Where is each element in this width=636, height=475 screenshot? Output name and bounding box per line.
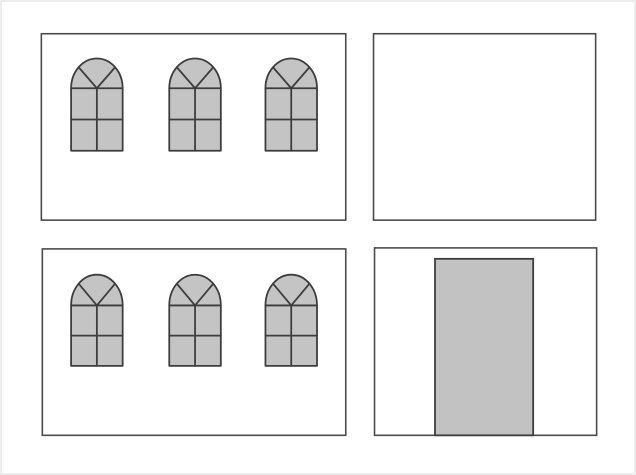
facade-diagram-canvas [0, 0, 636, 475]
arched-window [71, 275, 123, 366]
door [435, 259, 533, 436]
wall-panel-top-left [41, 34, 345, 220]
wall-panel-bottom-left [42, 249, 345, 435]
wall-outline-top-right [374, 34, 596, 220]
wall-panel-top-right [374, 34, 596, 220]
arched-window [265, 275, 317, 366]
arched-window [71, 59, 123, 151]
wall-panel-bottom-right [375, 248, 597, 435]
arched-window [169, 59, 221, 151]
arched-window [265, 59, 317, 151]
arched-window [169, 275, 221, 366]
facade-diagram [2, 2, 634, 473]
